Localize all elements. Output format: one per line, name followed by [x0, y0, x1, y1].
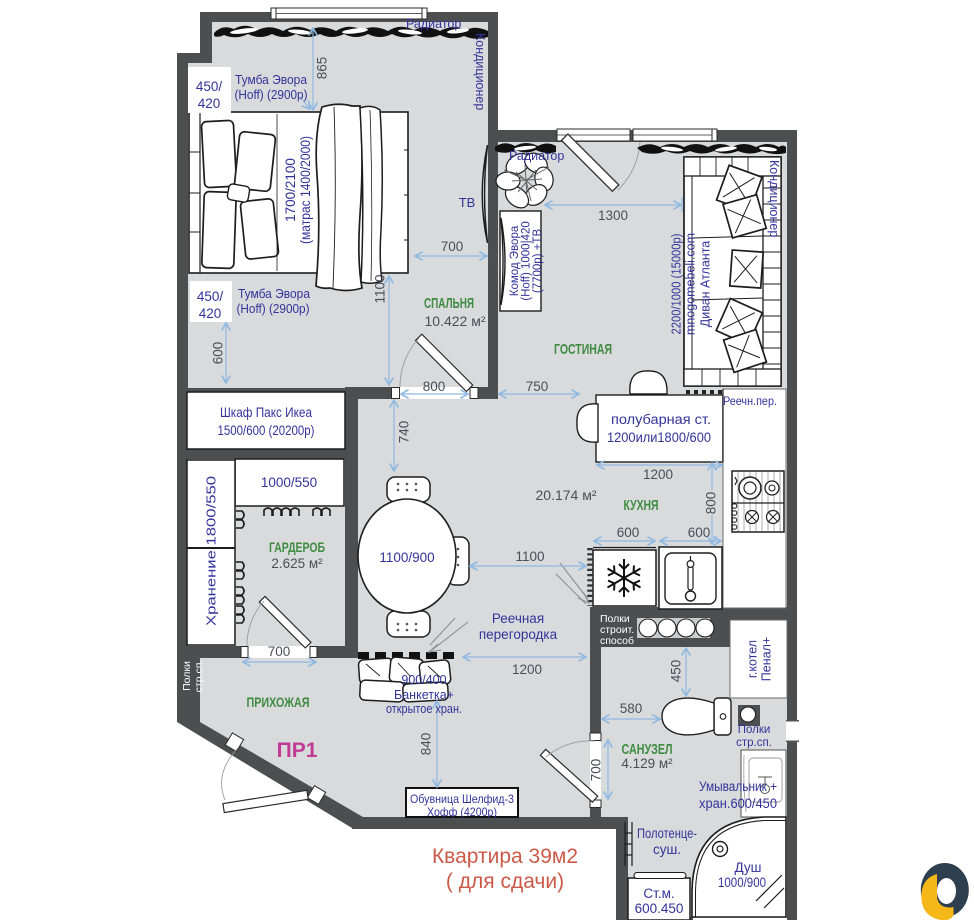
svg-text:Радиатор: Радиатор: [406, 17, 461, 31]
svg-text:740: 740: [397, 421, 412, 444]
svg-text:840: 840: [419, 733, 434, 756]
svg-text:Банкетка+: Банкетка+: [394, 688, 454, 702]
svg-text:Кондиционер: Кондиционер: [767, 160, 781, 237]
svg-text:580: 580: [620, 701, 643, 716]
svg-text:Хранение 1800/550: Хранение 1800/550: [204, 476, 219, 626]
svg-text:420: 420: [199, 306, 222, 321]
svg-text:Полки: Полки: [738, 724, 771, 736]
svg-text:Полки: Полки: [181, 661, 193, 691]
svg-text:Реечн.пер.: Реечн.пер.: [723, 394, 777, 408]
svg-text:600: 600: [617, 525, 640, 540]
svg-text:ТВ: ТВ: [459, 195, 476, 210]
svg-text:(Hoff) (2900р): (Hoff) (2900р): [235, 87, 308, 102]
svg-text:ГОСТИНАЯ: ГОСТИНАЯ: [554, 341, 612, 358]
svg-text:865: 865: [315, 57, 330, 80]
svg-text:Кондиционер: Кондиционер: [473, 33, 487, 110]
svg-text:Душ: Душ: [734, 860, 761, 875]
svg-text:600: 600: [211, 342, 226, 365]
svg-text:1100: 1100: [515, 549, 544, 564]
svg-text:Шкаф Пакс Икеа: Шкаф Пакс Икеа: [220, 405, 312, 420]
svg-text:1100: 1100: [373, 274, 388, 303]
svg-text:перегородка: перегородка: [479, 627, 558, 642]
svg-text:СПАЛЬНЯ: СПАЛЬНЯ: [424, 295, 474, 312]
svg-text:1300: 1300: [598, 208, 628, 223]
svg-text:Ст.м.: Ст.м.: [643, 886, 674, 901]
svg-text:1000/900: 1000/900: [718, 875, 766, 890]
svg-text:Реечная: Реечная: [492, 611, 544, 626]
svg-text:800: 800: [423, 379, 446, 394]
svg-text:(Hoff) (2900р): (Hoff) (2900р): [237, 301, 310, 316]
svg-text:1000/550: 1000/550: [261, 475, 317, 490]
svg-text:450: 450: [669, 660, 684, 683]
svg-text:10.422 м²: 10.422 м²: [425, 313, 486, 329]
svg-text:ГАРДЕРОБ: ГАРДЕРОБ: [269, 539, 325, 555]
svg-text:Пенал+: Пенал+: [760, 637, 774, 681]
svg-text:1200или1800/600: 1200или1800/600: [607, 430, 711, 445]
svg-text:стр.сп.: стр.сп.: [193, 660, 205, 693]
svg-text:полубарная ст.: полубарная ст.: [611, 412, 711, 427]
svg-text:способ: способ: [600, 635, 634, 647]
svg-text:1200: 1200: [512, 662, 542, 677]
svg-text:(7700р) +ТВ: (7700р) +ТВ: [532, 229, 544, 294]
svg-text:Тумба Эвора: Тумба Эвора: [238, 286, 311, 301]
svg-text:700: 700: [441, 239, 464, 254]
svg-text:1500/600 (20200р): 1500/600 (20200р): [218, 423, 315, 438]
svg-text:1700/2100: 1700/2100: [283, 158, 298, 222]
svg-text:Обувница Шелфид-3: Обувница Шелфид-3: [410, 792, 514, 806]
svg-text:600.450: 600.450: [635, 901, 684, 916]
svg-text:800: 800: [704, 492, 719, 515]
svg-text:750: 750: [526, 379, 549, 394]
svg-text:(матрас 1400/2000): (матрас 1400/2000): [298, 136, 313, 244]
svg-text:г.котел: г.котел: [746, 640, 760, 678]
svg-text:(Hoff) 1000|420: (Hoff) 1000|420: [521, 221, 533, 301]
svg-text:Умывальник +: Умывальник +: [699, 779, 777, 794]
svg-text:450/: 450/: [196, 79, 223, 94]
svg-text:450/: 450/: [197, 289, 224, 304]
svg-text:Хофф (4200р): Хофф (4200р): [427, 805, 497, 819]
svg-text:Полотенце-: Полотенце-: [637, 826, 697, 841]
svg-text:1200: 1200: [643, 467, 673, 482]
svg-text:700: 700: [268, 644, 291, 659]
svg-text:420: 420: [198, 96, 221, 111]
svg-text:mnogomebeli.com: mnogomebeli.com: [684, 233, 698, 335]
svg-text:Диван Атланта: Диван Атланта: [699, 241, 713, 328]
svg-text:700: 700: [589, 759, 604, 782]
svg-text:Тумба Эвора: Тумба Эвора: [235, 72, 308, 87]
svg-text:1100/900: 1100/900: [379, 550, 434, 565]
svg-text:Комод Эвора: Комод Эвора: [509, 225, 521, 296]
svg-text:ПРИХОЖАЯ: ПРИХОЖАЯ: [247, 694, 310, 710]
svg-text:суш.: суш.: [653, 842, 681, 857]
svg-text:стр.сп.: стр.сп.: [736, 737, 772, 749]
svg-text:Радиатор: Радиатор: [509, 149, 564, 163]
svg-text:КУХНЯ: КУХНЯ: [624, 497, 659, 514]
svg-text:ПР1: ПР1: [277, 739, 318, 762]
svg-text:2200/1000 (15000р): 2200/1000 (15000р): [670, 234, 684, 335]
svg-text:900/400: 900/400: [401, 673, 446, 687]
svg-text:открытое хран.: открытое хран.: [386, 702, 462, 716]
svg-text:4.129 м²: 4.129 м²: [621, 756, 673, 771]
svg-text:2.625 м²: 2.625 м²: [271, 556, 323, 571]
svg-text:Квартира 39м2: Квартира 39м2: [432, 845, 578, 868]
svg-text:600: 600: [688, 525, 711, 540]
svg-text:( для сдачи): ( для сдачи): [446, 870, 564, 893]
svg-text:20.174 м²: 20.174 м²: [536, 487, 597, 503]
svg-text:хран.600/450: хран.600/450: [699, 796, 777, 811]
